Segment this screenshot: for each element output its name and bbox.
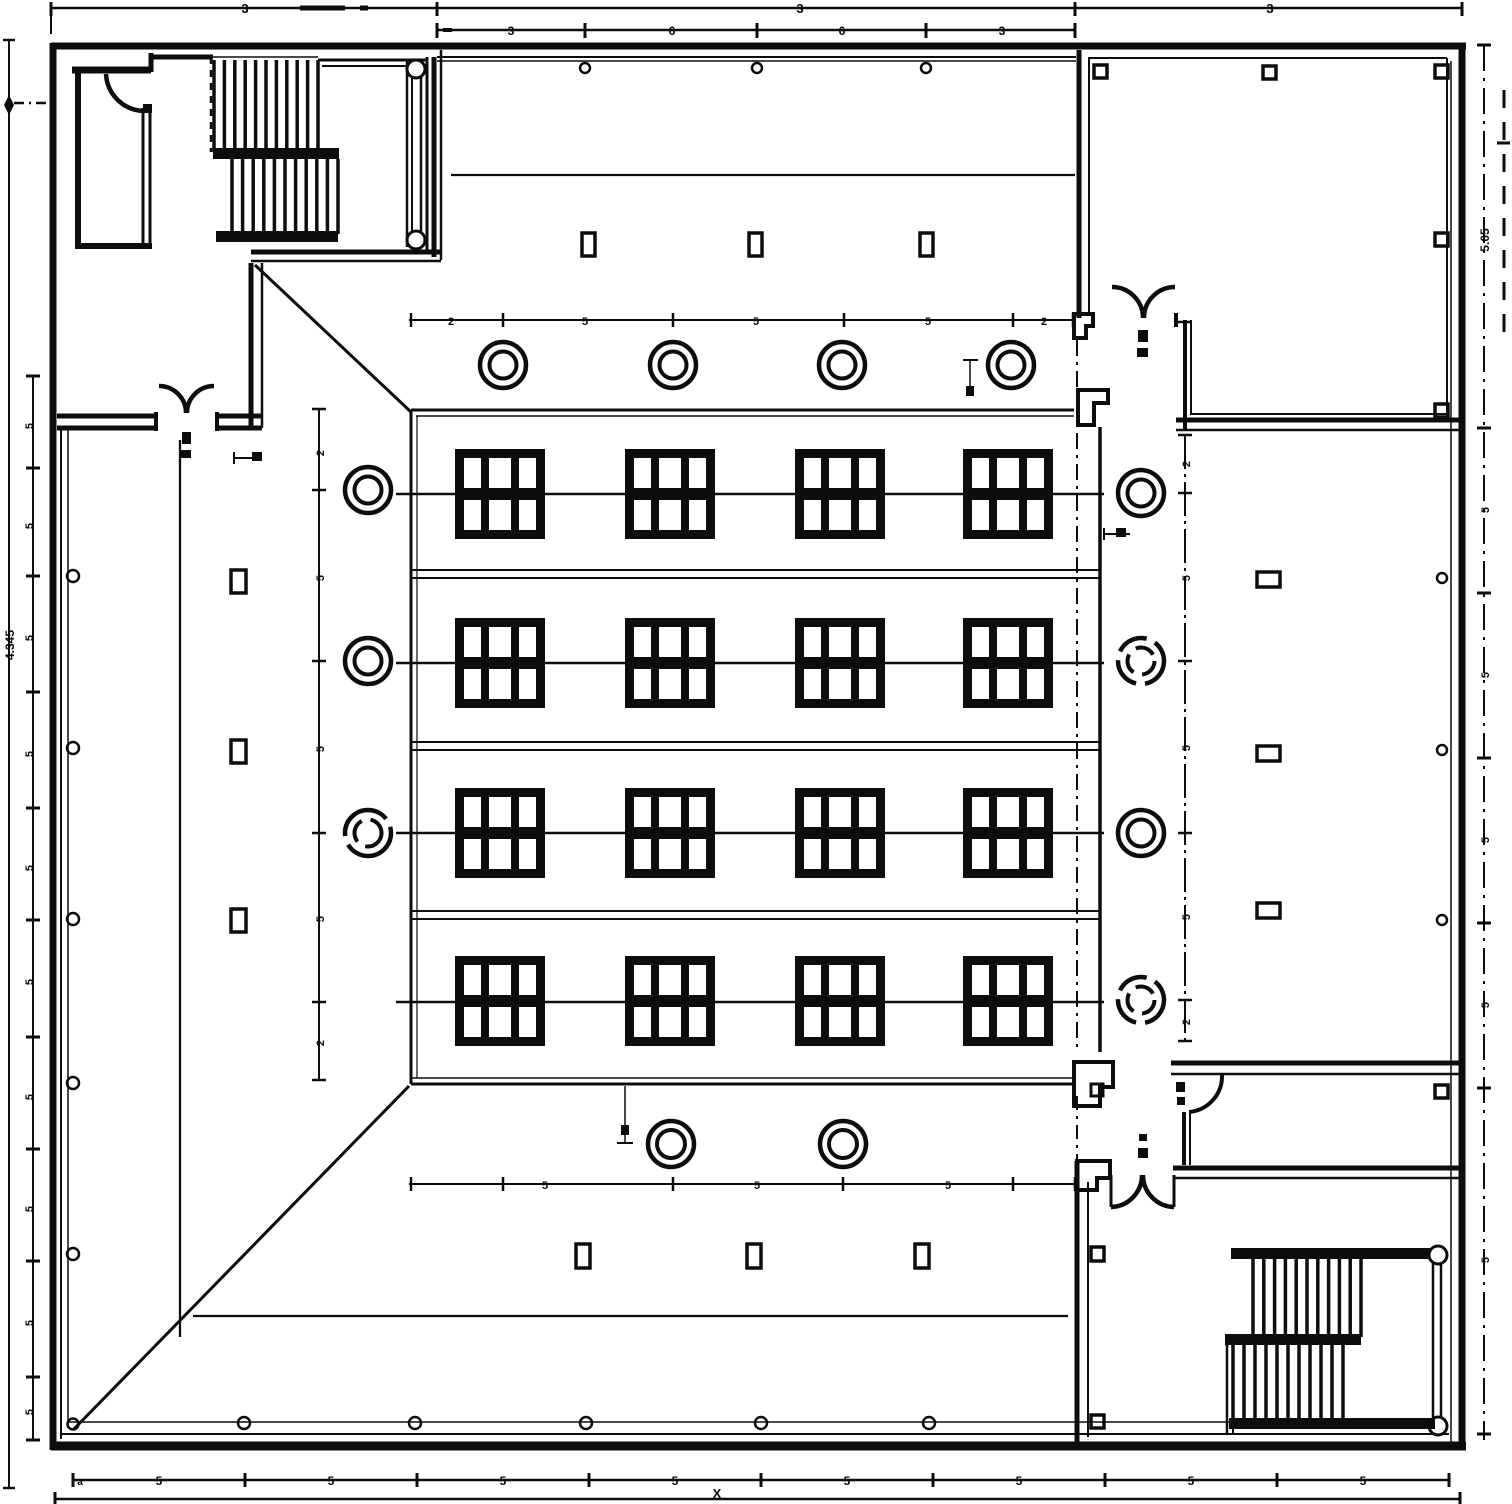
svg-text:6: 6 [669, 24, 676, 38]
svg-text:5: 5 [1188, 1474, 1195, 1488]
svg-text:5: 5 [753, 316, 759, 328]
svg-text:X: X [713, 1486, 722, 1501]
svg-text:5: 5 [24, 979, 36, 985]
svg-text:2: 2 [1181, 461, 1193, 467]
svg-text:5: 5 [500, 1474, 507, 1488]
svg-text:5: 5 [315, 916, 327, 922]
svg-text:2: 2 [315, 450, 327, 456]
svg-text:6: 6 [839, 24, 846, 38]
svg-text:5: 5 [315, 575, 327, 581]
svg-text:5: 5 [24, 1094, 36, 1100]
svg-text:5.05: 5.05 [1478, 228, 1492, 252]
svg-text:5: 5 [945, 1180, 951, 1192]
svg-text:5: 5 [1480, 1257, 1492, 1263]
svg-text:3: 3 [508, 24, 515, 38]
svg-text:5: 5 [1181, 745, 1193, 751]
svg-text:5: 5 [156, 1474, 163, 1488]
svg-text:5: 5 [24, 1206, 36, 1212]
svg-text:3: 3 [1266, 1, 1273, 16]
svg-text:5: 5 [1181, 914, 1193, 920]
svg-text:2: 2 [315, 1040, 327, 1046]
svg-text:5: 5 [24, 1320, 36, 1326]
svg-text:5: 5 [1360, 1474, 1367, 1488]
svg-text:5: 5 [24, 1409, 36, 1415]
svg-text:3: 3 [241, 1, 248, 16]
svg-text:2: 2 [1041, 316, 1047, 328]
svg-text:5: 5 [582, 316, 588, 328]
svg-text:5: 5 [315, 746, 327, 752]
svg-text:5: 5 [328, 1474, 335, 1488]
svg-text:a: a [77, 1477, 83, 1488]
svg-text:5: 5 [1480, 672, 1492, 678]
svg-text:5: 5 [24, 635, 36, 641]
svg-text:5: 5 [672, 1474, 679, 1488]
svg-text:5: 5 [24, 865, 36, 871]
svg-text:5: 5 [24, 423, 36, 429]
svg-text:2: 2 [1181, 1019, 1193, 1025]
svg-text:5: 5 [925, 316, 931, 328]
svg-text:5: 5 [1480, 837, 1492, 843]
svg-text:5: 5 [24, 751, 36, 757]
svg-text:4.345: 4.345 [3, 630, 17, 660]
svg-text:5: 5 [1480, 507, 1492, 513]
svg-text:5: 5 [542, 1180, 548, 1192]
svg-text:5: 5 [1181, 575, 1193, 581]
svg-text:5: 5 [844, 1474, 851, 1488]
svg-text:5: 5 [1016, 1474, 1023, 1488]
svg-text:2: 2 [448, 316, 454, 328]
svg-text:5: 5 [1480, 1002, 1492, 1008]
svg-text:5: 5 [754, 1180, 760, 1192]
svg-text:3: 3 [999, 24, 1006, 38]
svg-text:3: 3 [796, 1, 803, 16]
svg-text:5: 5 [24, 523, 36, 529]
